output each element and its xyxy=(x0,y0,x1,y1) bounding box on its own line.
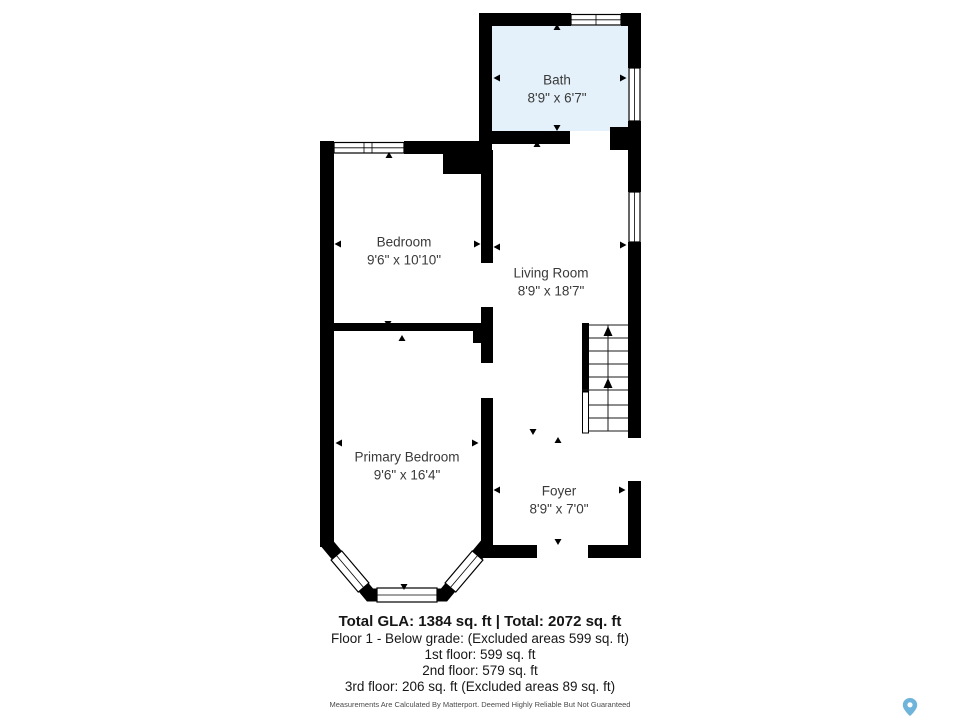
foyer-bottom-wall xyxy=(483,545,641,558)
room-label-living-room: Living Room 8'9" x 18'7" xyxy=(513,265,588,300)
room-label-bath: Bath 8'9" x 6'7" xyxy=(527,72,586,107)
bay-bottom-window-icon xyxy=(377,588,437,602)
interior-vertical-wall xyxy=(473,150,493,557)
room-name: Bedroom xyxy=(367,234,441,252)
room-label-bedroom: Bedroom 9'6" x 10'10" xyxy=(367,234,441,269)
living-room-window-icon xyxy=(629,192,640,242)
floor3-area-text: 2nd floor: 579 sq. ft xyxy=(0,663,960,679)
bath-top-window-icon xyxy=(571,15,621,26)
right-outer-wall xyxy=(628,150,641,558)
room-label-primary-bedroom: Primary Bedroom 9'6" x 16'4" xyxy=(354,449,459,484)
room-label-foyer: Foyer 8'9" x 7'0" xyxy=(529,483,588,518)
room-name: Foyer xyxy=(529,483,588,501)
matterport-pin-icon xyxy=(901,696,919,718)
room-dimensions: 8'9" x 7'0" xyxy=(529,500,588,518)
room-dimensions: 9'6" x 10'10" xyxy=(367,251,441,269)
staircase xyxy=(582,323,628,433)
room-name: Bath xyxy=(527,72,586,90)
stair-up-arrow-icon xyxy=(604,378,613,388)
bay-right-window-icon xyxy=(445,551,483,592)
bath-right-window-icon xyxy=(629,68,640,121)
room-dimensions: 9'6" x 16'4" xyxy=(354,466,459,484)
bedroom-divider-wall xyxy=(328,323,492,331)
room-dimensions: 8'9" x 6'7" xyxy=(527,89,586,107)
floor2-area-text: 1st floor: 599 sq. ft xyxy=(0,647,960,663)
room-bedroom-shape xyxy=(320,141,492,547)
floor-plan-page: Bath 8'9" x 6'7" Bedroom 9'6" x 10'10" L… xyxy=(0,0,960,720)
floor1-area-text: Floor 1 - Below grade: (Excluded areas 5… xyxy=(0,631,960,647)
bedroom-top-window-icon xyxy=(334,143,404,154)
area-summary: Total GLA: 1384 sq. ft | Total: 2072 sq.… xyxy=(0,612,960,709)
floor4-area-text: 3rd floor: 206 sq. ft (Excluded areas 89… xyxy=(0,679,960,695)
room-name: Living Room xyxy=(513,265,588,283)
room-dimensions: 8'9" x 18'7" xyxy=(513,282,588,300)
stair-railing xyxy=(583,392,589,433)
stair-side-wall xyxy=(582,323,589,392)
stair-up-arrow-icon xyxy=(604,326,613,336)
bay-window xyxy=(330,547,484,602)
total-gla-text: Total GLA: 1384 sq. ft | Total: 2072 sq.… xyxy=(0,612,960,631)
room-name: Primary Bedroom xyxy=(354,449,459,467)
bay-left-window-icon xyxy=(331,551,369,592)
measurement-disclaimer-text: Measurements Are Calculated By Matterpor… xyxy=(0,700,960,709)
